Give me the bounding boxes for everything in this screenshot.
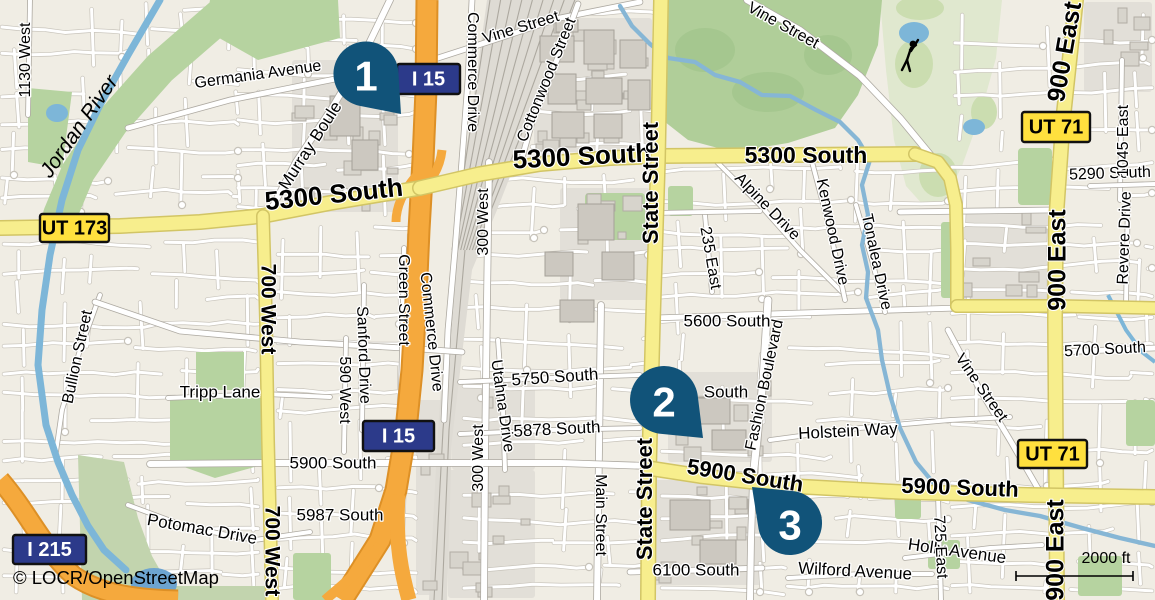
svg-text:700 West: 700 West <box>260 506 283 597</box>
svg-text:700 West: 700 West <box>256 264 279 355</box>
svg-text:5600 South: 5600 South <box>684 311 771 330</box>
svg-text:Green Street: Green Street <box>395 254 412 346</box>
svg-text:I 215: I 215 <box>27 539 71 561</box>
svg-text:State Street: State Street <box>638 121 663 244</box>
svg-text:1130 West: 1130 West <box>17 22 34 98</box>
svg-text:UT 71: UT 71 <box>1029 116 1083 138</box>
svg-text:5300 South: 5300 South <box>745 142 868 168</box>
svg-text:I 15: I 15 <box>412 68 445 90</box>
svg-text:South: South <box>704 382 748 401</box>
svg-text:590 West: 590 West <box>336 356 353 424</box>
svg-text:1: 1 <box>354 53 377 100</box>
svg-text:2: 2 <box>652 379 675 426</box>
svg-text:900 East: 900 East <box>1044 209 1072 311</box>
svg-text:State Street: State Street <box>632 437 657 560</box>
svg-text:900 East: 900 East <box>1042 499 1070 600</box>
svg-text:3: 3 <box>778 502 801 549</box>
svg-text:Revere Drive: Revere Drive <box>1115 191 1135 285</box>
svg-text:UT 173: UT 173 <box>42 217 108 239</box>
svg-text:5290 South: 5290 South <box>1069 164 1151 184</box>
svg-text:1045 East: 1045 East <box>1115 104 1132 177</box>
svg-text:© LOCR/OpenStreetMap: © LOCR/OpenStreetMap <box>13 567 219 588</box>
svg-text:5900 South: 5900 South <box>901 473 1019 502</box>
svg-text:300 West: 300 West <box>470 424 487 492</box>
svg-text:5900 South: 5900 South <box>290 453 377 472</box>
svg-text:I 15: I 15 <box>382 425 415 447</box>
svg-text:Tripp Lane: Tripp Lane <box>180 382 261 401</box>
svg-text:Sanford Drive: Sanford Drive <box>353 306 373 404</box>
svg-text:6100 South: 6100 South <box>653 560 740 579</box>
svg-text:2000 ft: 2000 ft <box>1082 550 1131 567</box>
svg-text:Main Street: Main Street <box>592 474 609 556</box>
svg-text:5987 South: 5987 South <box>297 505 384 524</box>
svg-text:300 West: 300 West <box>475 188 492 256</box>
svg-text:Commerce Drive: Commerce Drive <box>464 12 481 132</box>
svg-text:725 East: 725 East <box>930 515 950 580</box>
svg-text:UT 71: UT 71 <box>1025 443 1079 465</box>
